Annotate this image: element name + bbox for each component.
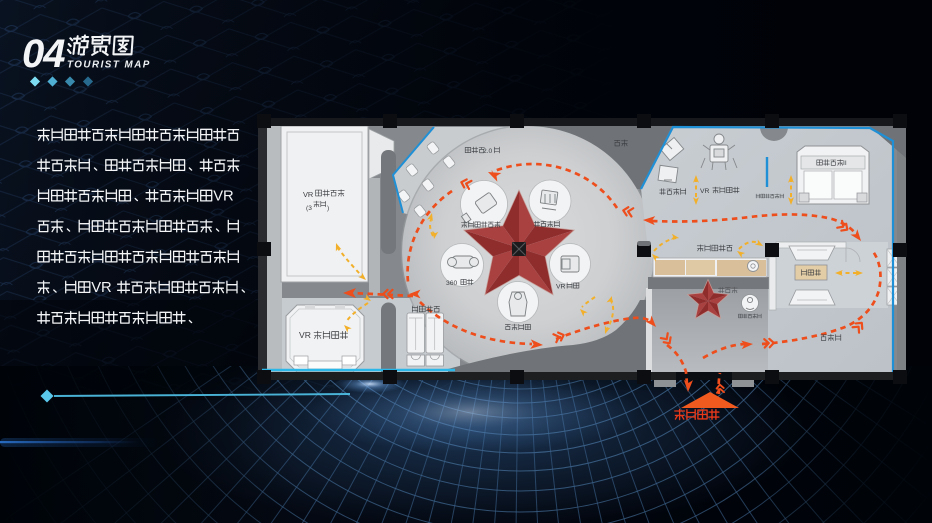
svg-text:VR: VR bbox=[213, 189, 234, 205]
svg-text:VR: VR bbox=[700, 188, 710, 195]
svg-text:2.0: 2.0 bbox=[483, 148, 492, 155]
svg-text:360: 360 bbox=[446, 280, 458, 287]
svg-text:04: 04 bbox=[22, 32, 65, 76]
svg-text:VR: VR bbox=[91, 280, 112, 296]
svg-text:VR: VR bbox=[556, 284, 566, 291]
svg-text:TOURIST MAP: TOURIST MAP bbox=[67, 60, 151, 71]
svg-text:VR: VR bbox=[299, 330, 311, 340]
svg-text:): ) bbox=[327, 205, 329, 212]
svg-text:VR: VR bbox=[303, 190, 313, 199]
svg-text:(3: (3 bbox=[306, 205, 312, 212]
svg-text:II: II bbox=[843, 160, 847, 167]
